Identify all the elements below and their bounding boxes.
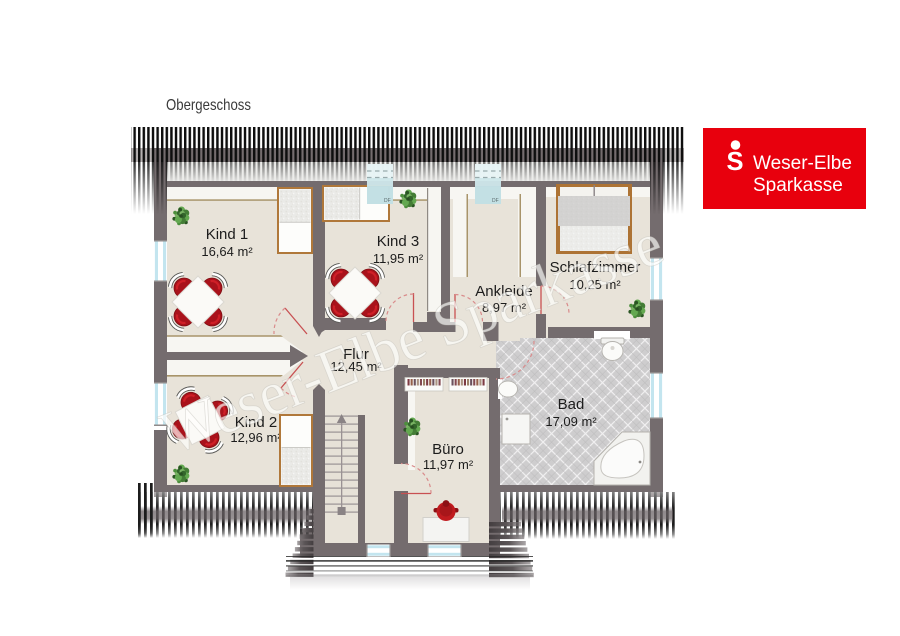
svg-text:Büro: Büro xyxy=(432,441,464,458)
svg-text:Obergeschoss: Obergeschoss xyxy=(166,97,251,114)
svg-text:17,09 m²: 17,09 m² xyxy=(545,414,597,429)
svg-text:11,97 m²: 11,97 m² xyxy=(423,457,474,472)
svg-text:Weser-Elbe: Weser-Elbe xyxy=(753,153,852,174)
svg-text:16,64 m²: 16,64 m² xyxy=(201,244,253,259)
svg-text:S: S xyxy=(726,148,743,176)
svg-text:Bad: Bad xyxy=(558,396,585,413)
svg-text:Kind 3: Kind 3 xyxy=(377,233,420,250)
svg-text:Sparkasse: Sparkasse xyxy=(753,175,843,196)
svg-text:DF: DF xyxy=(492,198,499,204)
svg-text:Kind 1: Kind 1 xyxy=(206,226,249,243)
svg-text:DF: DF xyxy=(384,198,391,204)
svg-text:11,95 m²: 11,95 m² xyxy=(373,251,424,266)
